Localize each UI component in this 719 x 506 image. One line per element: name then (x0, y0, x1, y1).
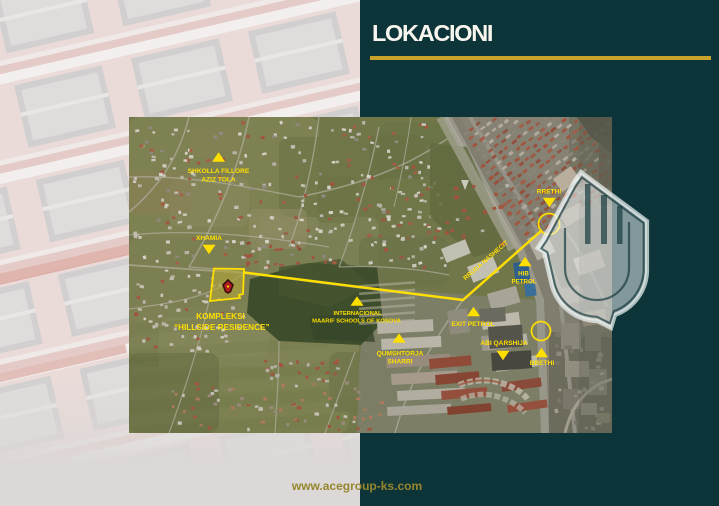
svg-text:EXIT PETROL: EXIT PETROL (451, 321, 494, 328)
svg-text:XHAMIA: XHAMIA (196, 235, 222, 242)
svg-text:“HILLSIDE RESIDENCE”: “HILLSIDE RESIDENCE” (174, 323, 270, 332)
svg-text:MAARIF SCHOOLS OF KOSOVA: MAARIF SCHOOLS OF KOSOVA (312, 319, 402, 325)
svg-text:INTERNACIONAL: INTERNACIONAL (334, 311, 382, 317)
svg-text:SHARRI: SHARRI (387, 359, 412, 366)
svg-text:QUMSHTORJA: QUMSHTORJA (377, 351, 424, 358)
svg-text:BRETHI: BRETHI (530, 360, 555, 367)
svg-text:ABI QARSHIJA: ABI QARSHIJA (480, 340, 527, 347)
svg-text:SHKOLLA FILLORE: SHKOLLA FILLORE (188, 168, 250, 175)
svg-text:KOMPLEKSI: KOMPLEKSI (196, 312, 245, 321)
svg-text:AZIZ TOLA: AZIZ TOLA (201, 177, 236, 184)
